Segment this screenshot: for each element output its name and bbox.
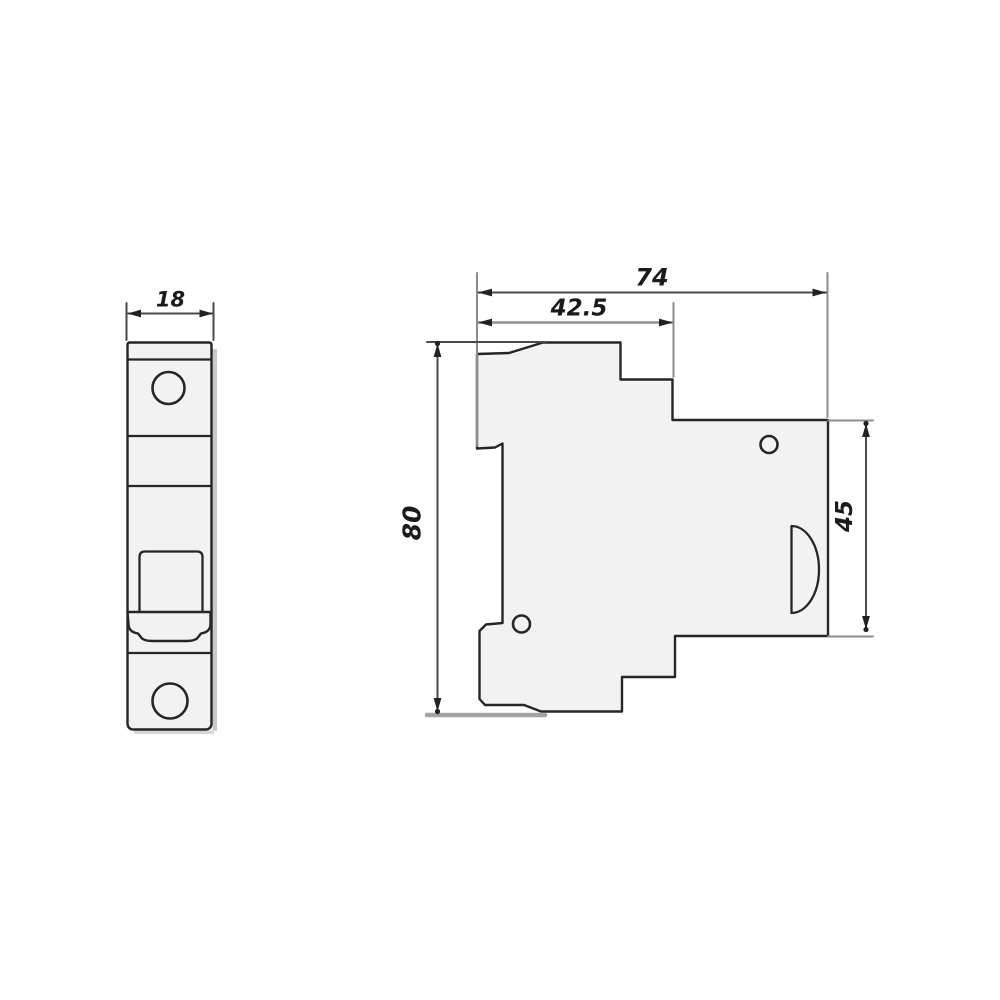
arrow-dot-top xyxy=(863,421,868,426)
dimension-label-80: 80 xyxy=(398,506,427,541)
arrowhead-left xyxy=(128,310,142,318)
side-view: 74 42.5 80 xyxy=(398,264,874,716)
arrowhead-left xyxy=(478,289,492,297)
arrowhead-right xyxy=(813,289,827,297)
dimension-label-45: 45 xyxy=(832,500,858,533)
toggle-base xyxy=(128,612,211,641)
dimension-label-42-5: 42.5 xyxy=(550,296,608,322)
arrow-dot-top xyxy=(435,341,440,346)
arrowhead-left xyxy=(478,319,492,327)
dimension-label-18: 18 xyxy=(156,288,185,312)
front-top-mounting-hole xyxy=(153,372,185,404)
front-bottom-mounting-hole xyxy=(153,684,188,719)
arrow-dot-bottom xyxy=(863,627,868,632)
front-view: 18 xyxy=(127,288,218,735)
side-lower-pin xyxy=(513,616,530,633)
dimension-18: 18 xyxy=(127,288,214,341)
side-upper-pin xyxy=(761,436,778,453)
side-profile-outline xyxy=(477,343,828,712)
arrow-dot-bottom xyxy=(435,709,440,714)
arrowhead-right xyxy=(659,319,673,327)
front-body-shadow-right xyxy=(213,349,218,731)
front-body-shadow-bottom xyxy=(134,731,214,735)
dimension-label-74: 74 xyxy=(635,264,668,292)
dimension-drawing: 18 74 42.5 xyxy=(0,0,1000,1000)
arrowhead-right xyxy=(200,310,214,318)
drawing-canvas: 18 74 42.5 xyxy=(0,0,1000,1000)
dimension-45: 45 xyxy=(828,421,873,637)
